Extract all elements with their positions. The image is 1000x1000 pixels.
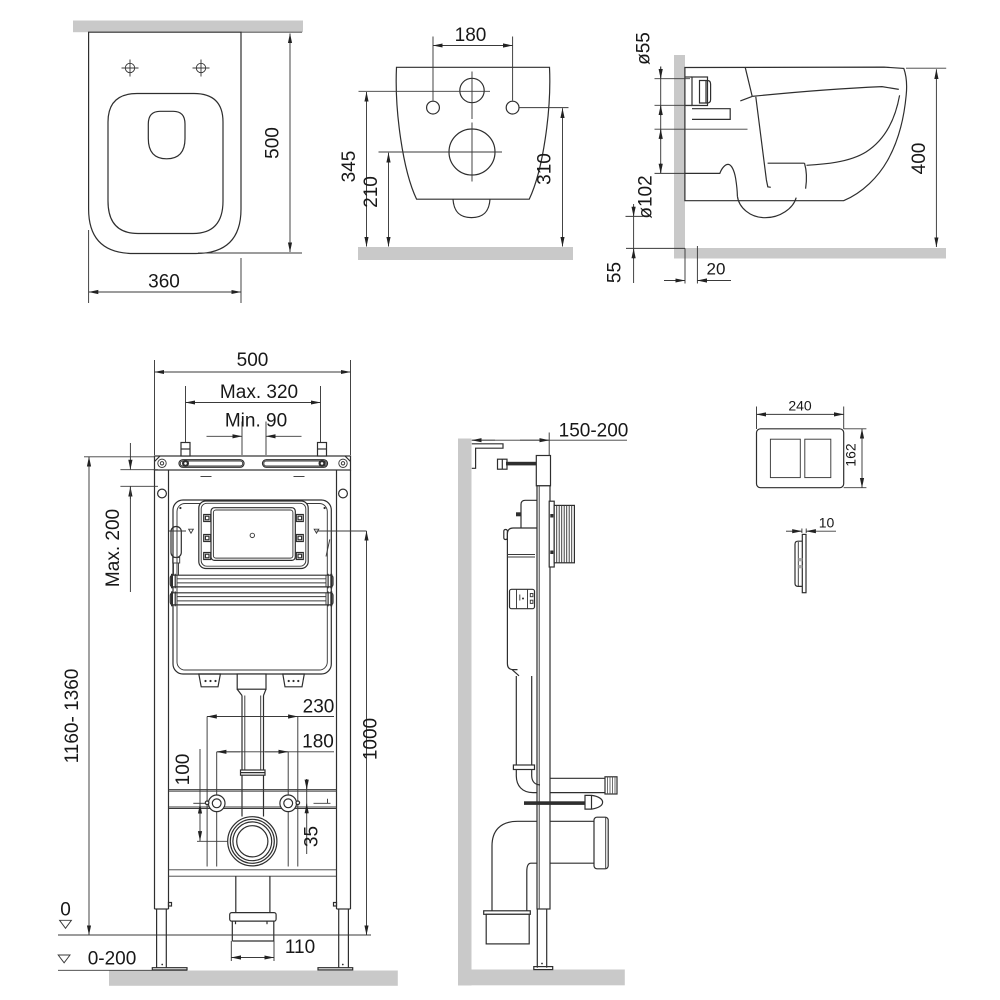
svg-text:ø102: ø102	[636, 175, 657, 218]
svg-text:1160- 1360: 1160- 1360	[62, 669, 83, 764]
svg-text:55: 55	[605, 262, 626, 283]
svg-text:110: 110	[285, 937, 315, 958]
svg-text:ø55: ø55	[634, 32, 655, 65]
svg-text:210: 210	[361, 176, 382, 208]
svg-text:180: 180	[302, 731, 334, 752]
svg-text:360: 360	[148, 272, 180, 293]
svg-text:Max. 320: Max. 320	[220, 382, 298, 403]
svg-text:500: 500	[263, 127, 284, 159]
svg-text:0-200: 0-200	[88, 949, 137, 970]
svg-text:345: 345	[339, 151, 360, 183]
svg-text:Max. 200: Max. 200	[103, 509, 124, 587]
svg-text:150-200: 150-200	[559, 421, 629, 442]
svg-text:Min. 90: Min. 90	[225, 411, 287, 432]
svg-text:20: 20	[707, 260, 726, 279]
svg-text:10: 10	[819, 515, 835, 531]
svg-text:180: 180	[455, 25, 487, 46]
svg-text:1000: 1000	[361, 718, 382, 760]
svg-text:35: 35	[301, 826, 322, 847]
svg-text:0: 0	[60, 900, 71, 921]
svg-text:310: 310	[535, 153, 556, 185]
svg-text:400: 400	[909, 143, 930, 175]
svg-text:100: 100	[173, 754, 194, 786]
svg-text:230: 230	[303, 697, 335, 718]
svg-text:240: 240	[788, 398, 812, 414]
svg-text:162: 162	[842, 443, 858, 467]
svg-text:500: 500	[237, 350, 269, 371]
